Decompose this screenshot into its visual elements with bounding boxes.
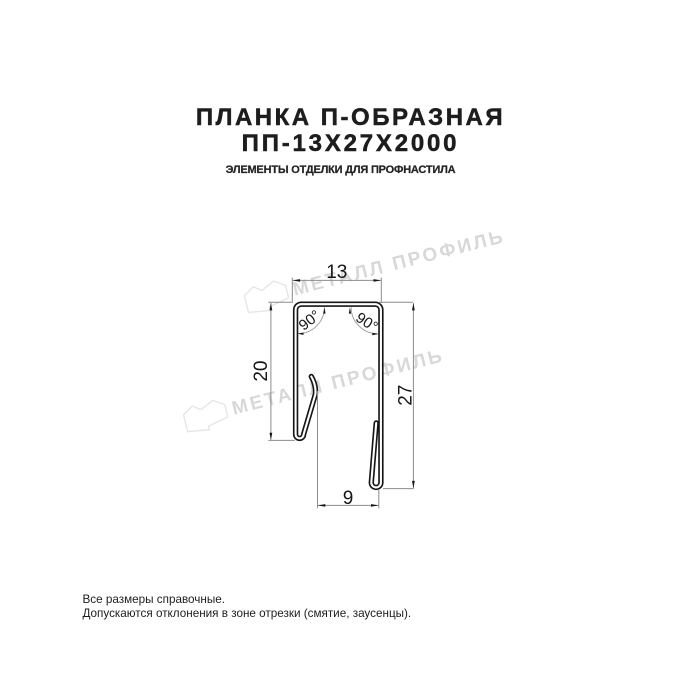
svg-text:27: 27 <box>395 385 416 406</box>
svg-text:9: 9 <box>343 488 354 509</box>
svg-text:20: 20 <box>251 361 272 382</box>
svg-text:13: 13 <box>326 262 347 283</box>
svg-text:90°: 90° <box>352 309 380 336</box>
svg-text:90°: 90° <box>296 307 324 334</box>
